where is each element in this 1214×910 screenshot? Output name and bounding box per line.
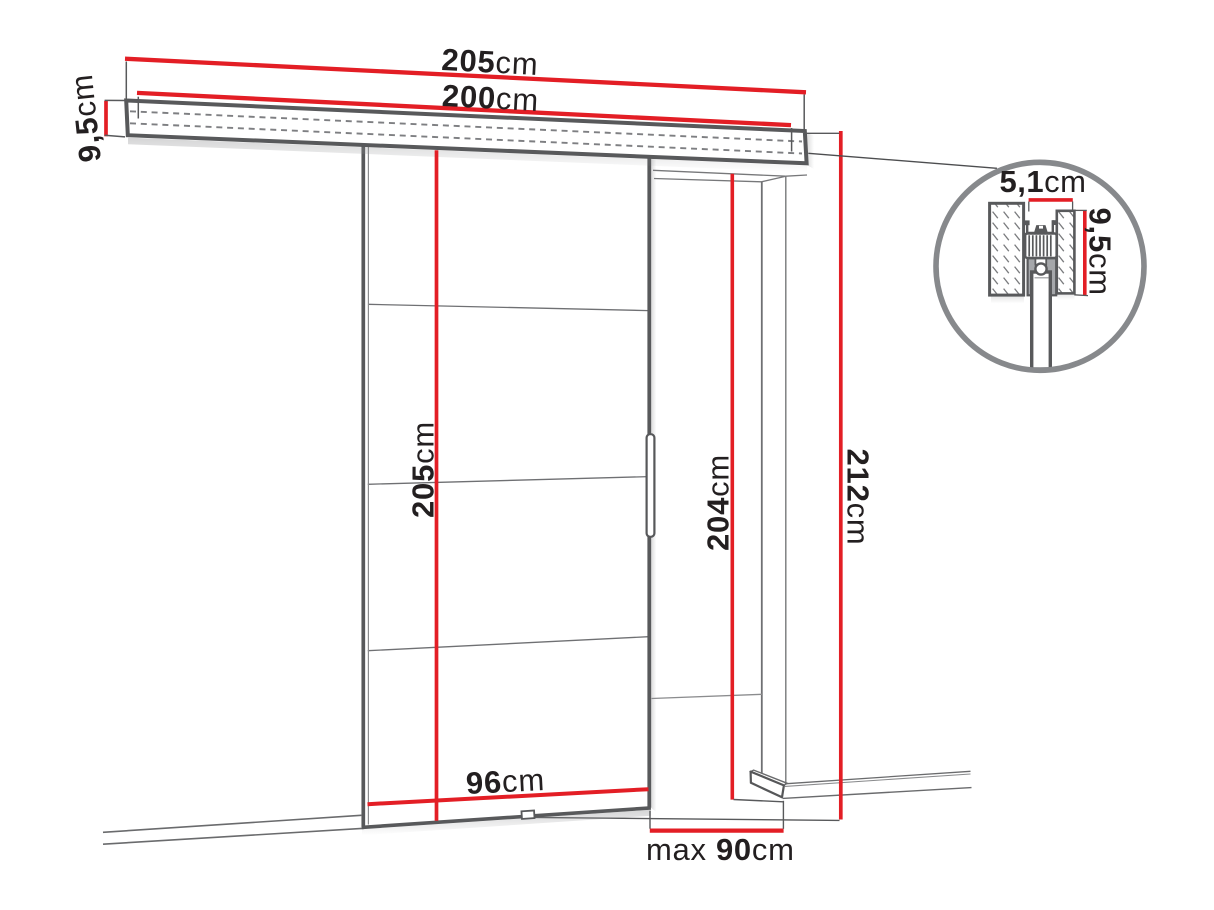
svg-text:212cm: 212cm bbox=[841, 449, 876, 546]
svg-text:204cm: 204cm bbox=[701, 454, 736, 551]
svg-text:205cm: 205cm bbox=[441, 42, 540, 82]
svg-text:205cm: 205cm bbox=[406, 421, 441, 518]
svg-text:max 90cm: max 90cm bbox=[646, 832, 795, 867]
svg-text:200cm: 200cm bbox=[441, 78, 540, 118]
svg-text:96cm: 96cm bbox=[465, 762, 546, 801]
svg-text:9,5cm: 9,5cm bbox=[1083, 208, 1118, 296]
svg-text:5,1cm: 5,1cm bbox=[1000, 164, 1087, 199]
